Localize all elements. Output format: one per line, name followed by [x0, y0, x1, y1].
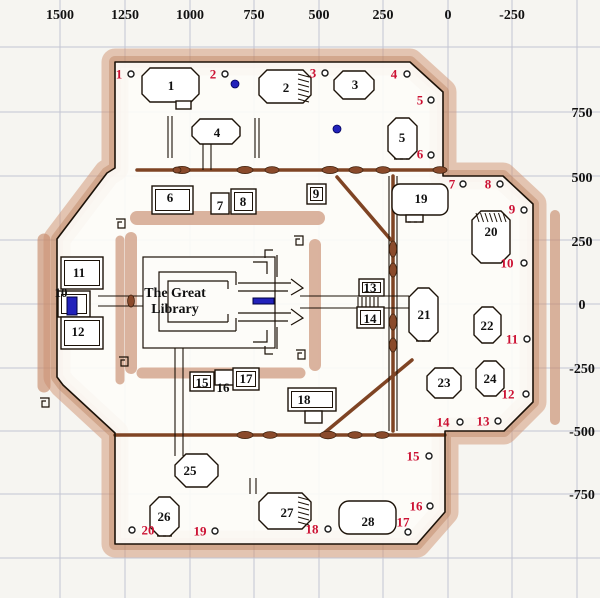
room-number-3: 3 — [352, 77, 359, 92]
room-number-28: 28 — [362, 514, 376, 529]
axis-top-label--250: -250 — [499, 8, 525, 23]
red-marker-number: 15 — [407, 449, 421, 464]
room-number-4: 4 — [214, 125, 221, 140]
red-marker-point — [212, 528, 218, 534]
room-25 — [175, 454, 218, 487]
axis-top-label-1500: 1500 — [46, 8, 74, 23]
room-number-26: 26 — [158, 509, 172, 524]
red-marker-number: 5 — [417, 93, 424, 108]
axis-right-label-500: 500 — [572, 171, 593, 186]
room-number-5: 5 — [399, 130, 406, 145]
room-number-22: 22 — [481, 318, 494, 333]
red-marker-point — [428, 152, 434, 158]
red-marker-point — [495, 418, 501, 424]
room-number-8: 8 — [240, 194, 247, 209]
red-marker-number: 3 — [310, 66, 317, 81]
room-shape — [175, 454, 218, 487]
red-marker-point — [428, 97, 434, 103]
blue-dot — [333, 125, 341, 133]
room-number-16: 16 — [217, 380, 231, 395]
red-marker-number: 13 — [477, 414, 491, 429]
axis-top-label-750: 750 — [244, 8, 265, 23]
room-number-19: 19 — [415, 191, 429, 206]
axis-top-label-1250: 1250 — [111, 8, 139, 23]
red-marker-number: 16 — [410, 499, 424, 514]
blue-marker-bar — [67, 297, 77, 315]
great-library-map: 1234567891011121314151617181920212223242… — [0, 0, 600, 598]
room-number-1: 1 — [168, 78, 175, 93]
red-marker-number: 18 — [306, 522, 320, 537]
red-marker-point — [222, 71, 228, 77]
red-marker-point — [322, 70, 328, 76]
red-marker-number: 4 — [391, 67, 398, 82]
red-marker-point — [497, 181, 503, 187]
red-marker-number: 19 — [194, 524, 208, 539]
axis-right-label--500: -500 — [569, 425, 595, 440]
room-number-11: 11 — [73, 265, 85, 280]
axis-top-label-500: 500 — [309, 8, 330, 23]
red-marker-point — [460, 181, 466, 187]
red-marker-point — [457, 419, 463, 425]
red-marker-number: 6 — [417, 147, 424, 162]
red-marker-point — [128, 71, 134, 77]
red-marker-number: 20 — [142, 523, 155, 538]
axis-right-label-0: 0 — [579, 298, 586, 313]
room-number-25: 25 — [184, 463, 198, 478]
room-annex — [406, 215, 423, 222]
room-number-15: 15 — [196, 375, 210, 390]
blue-marker-bar — [253, 298, 274, 304]
red-marker-number: 9 — [509, 202, 516, 217]
room-number-6: 6 — [167, 190, 174, 205]
red-marker-number: 7 — [449, 177, 456, 192]
red-marker-point — [405, 529, 411, 535]
blue-dot — [231, 80, 239, 88]
red-marker-point — [523, 391, 529, 397]
axis-top-label-1000: 1000 — [176, 8, 204, 23]
library-caption: The Great Library — [144, 286, 206, 317]
red-marker-point — [427, 503, 433, 509]
red-marker-number: 11 — [506, 332, 518, 347]
axis-right-label--750: -750 — [569, 488, 595, 503]
room-number-12: 12 — [72, 324, 85, 339]
room-number-14: 14 — [364, 311, 378, 326]
red-marker-point — [521, 260, 527, 266]
red-marker-point — [521, 207, 527, 213]
red-marker-number: 17 — [397, 515, 411, 530]
room-number-9: 9 — [313, 186, 320, 201]
red-marker-point — [404, 71, 410, 77]
room-number-20: 20 — [485, 224, 498, 239]
axis-right-label-250: 250 — [572, 235, 593, 250]
red-marker-number: 10 — [501, 256, 514, 271]
room-number-23: 23 — [438, 375, 452, 390]
room-number-13: 13 — [364, 280, 378, 295]
red-marker-point — [524, 336, 530, 342]
axis-top-label-0: 0 — [445, 8, 452, 23]
map-canvas: 1234567891011121314151617181920212223242… — [0, 0, 600, 598]
axis-right-label-750: 750 — [572, 106, 593, 121]
red-marker-point — [129, 527, 135, 533]
room-number-27: 27 — [281, 505, 295, 520]
red-marker-number: 12 — [502, 387, 515, 402]
red-marker-number: 8 — [485, 177, 492, 192]
library-caption-line1: The Great — [144, 286, 206, 301]
room-number-18: 18 — [298, 392, 312, 407]
room-number-17: 17 — [240, 371, 254, 386]
room-number-2: 2 — [283, 80, 290, 95]
red-marker-point — [325, 526, 331, 532]
red-marker-number: 1 — [116, 67, 123, 82]
room-annex — [305, 411, 322, 423]
room-number-7: 7 — [217, 198, 224, 213]
room-number-10: 10 — [55, 285, 68, 300]
red-marker-number: 2 — [210, 67, 217, 82]
red-marker-point — [426, 453, 432, 459]
library-caption-line2: Library — [151, 302, 198, 317]
axis-top-label-250: 250 — [373, 8, 394, 23]
room-annex — [176, 101, 191, 109]
red-marker-number: 14 — [437, 415, 451, 430]
room-number-21: 21 — [418, 307, 431, 322]
axis-right-label--250: -250 — [569, 362, 595, 377]
room-number-24: 24 — [484, 371, 498, 386]
